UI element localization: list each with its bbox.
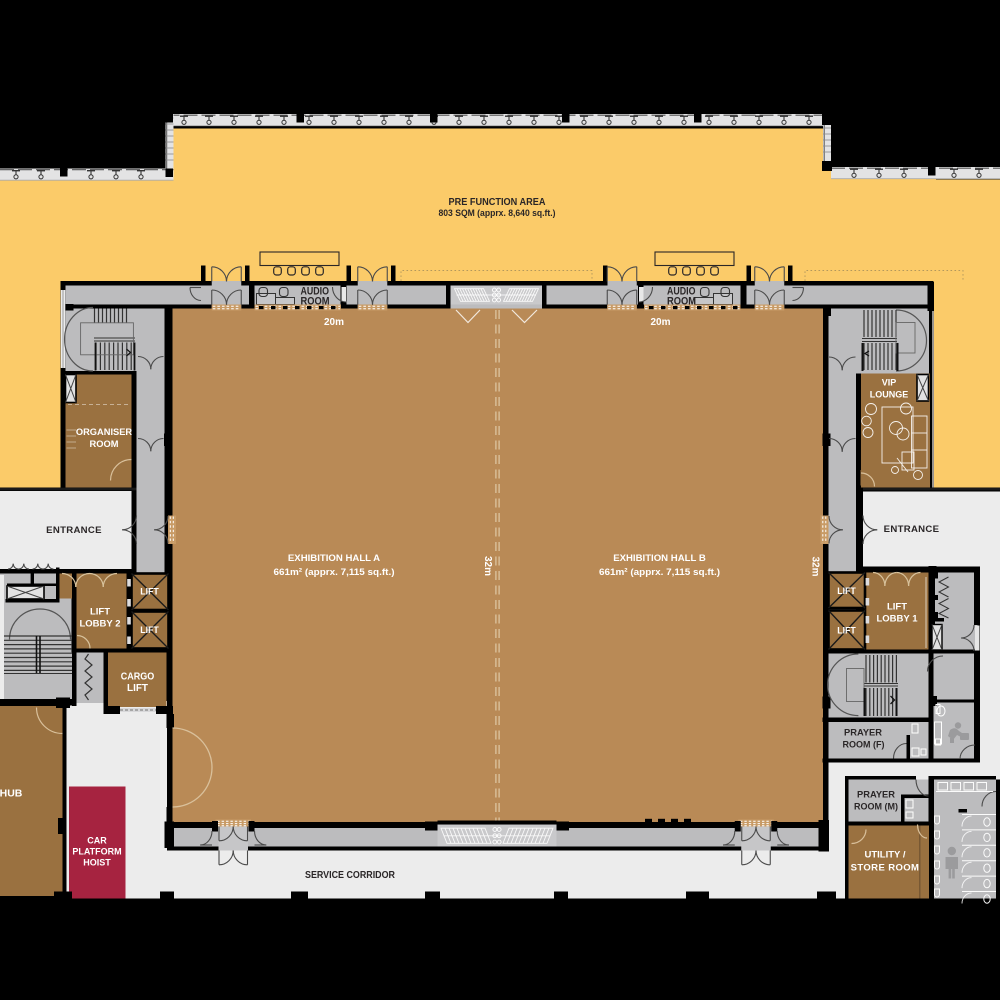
- svg-text:CAR: CAR: [87, 836, 107, 846]
- svg-text:ROOM (F): ROOM (F): [843, 740, 885, 751]
- svg-text:LIFT: LIFT: [837, 626, 856, 636]
- svg-text:ORGANISER: ORGANISER: [76, 427, 133, 437]
- svg-text:PRAYER: PRAYER: [844, 728, 882, 739]
- svg-text:VIP: VIP: [882, 378, 897, 388]
- svg-text:SERVICE CORRIDOR: SERVICE CORRIDOR: [305, 870, 395, 881]
- svg-text:ROOM: ROOM: [301, 296, 330, 308]
- svg-text:ENTRANCE: ENTRANCE: [46, 525, 102, 536]
- svg-text:LIFT: LIFT: [140, 587, 159, 597]
- svg-text:LIFT: LIFT: [837, 586, 856, 596]
- svg-text:ROOM (M): ROOM (M): [854, 802, 898, 813]
- svg-text:CARGO: CARGO: [121, 672, 155, 683]
- svg-text:HOIST: HOIST: [83, 858, 111, 868]
- svg-text:LOBBY 1: LOBBY 1: [876, 614, 918, 625]
- svg-text:UTILITY /: UTILITY /: [865, 850, 906, 861]
- svg-text:LOUNGE: LOUNGE: [870, 390, 909, 400]
- svg-text:20m: 20m: [324, 317, 344, 328]
- svg-text:EXHIBITION HALL B: EXHIBITION HALL B: [613, 553, 706, 564]
- svg-text:LIFT: LIFT: [90, 607, 110, 618]
- svg-text:PRE FUNCTION AREA: PRE FUNCTION AREA: [449, 197, 546, 208]
- svg-text:ENTRANCE: ENTRANCE: [884, 524, 940, 535]
- svg-text:ROOM: ROOM: [667, 296, 696, 308]
- svg-text:ROOM: ROOM: [90, 439, 119, 449]
- svg-text:PLATFORM: PLATFORM: [72, 847, 121, 857]
- svg-text:EXHIBITION HALL A: EXHIBITION HALL A: [288, 553, 380, 564]
- svg-text:STORE ROOM: STORE ROOM: [851, 863, 920, 874]
- svg-text:HUB: HUB: [0, 788, 23, 800]
- svg-text:661m² (apprx. 7,115 sq.ft.): 661m² (apprx. 7,115 sq.ft.): [599, 566, 720, 577]
- svg-text:661m² (apprx. 7,115 sq.ft.): 661m² (apprx. 7,115 sq.ft.): [274, 566, 395, 577]
- svg-text:LIFT: LIFT: [140, 625, 159, 635]
- svg-text:32m: 32m: [482, 556, 493, 576]
- svg-text:LOBBY 2: LOBBY 2: [79, 619, 120, 630]
- svg-text:803 SQM (apprx. 8,640 sq.ft.): 803 SQM (apprx. 8,640 sq.ft.): [439, 208, 556, 218]
- svg-text:LIFT: LIFT: [887, 602, 907, 613]
- svg-text:32m: 32m: [810, 556, 821, 576]
- svg-text:LIFT: LIFT: [127, 683, 148, 694]
- svg-text:PRAYER: PRAYER: [857, 790, 895, 801]
- svg-text:20m: 20m: [650, 317, 670, 328]
